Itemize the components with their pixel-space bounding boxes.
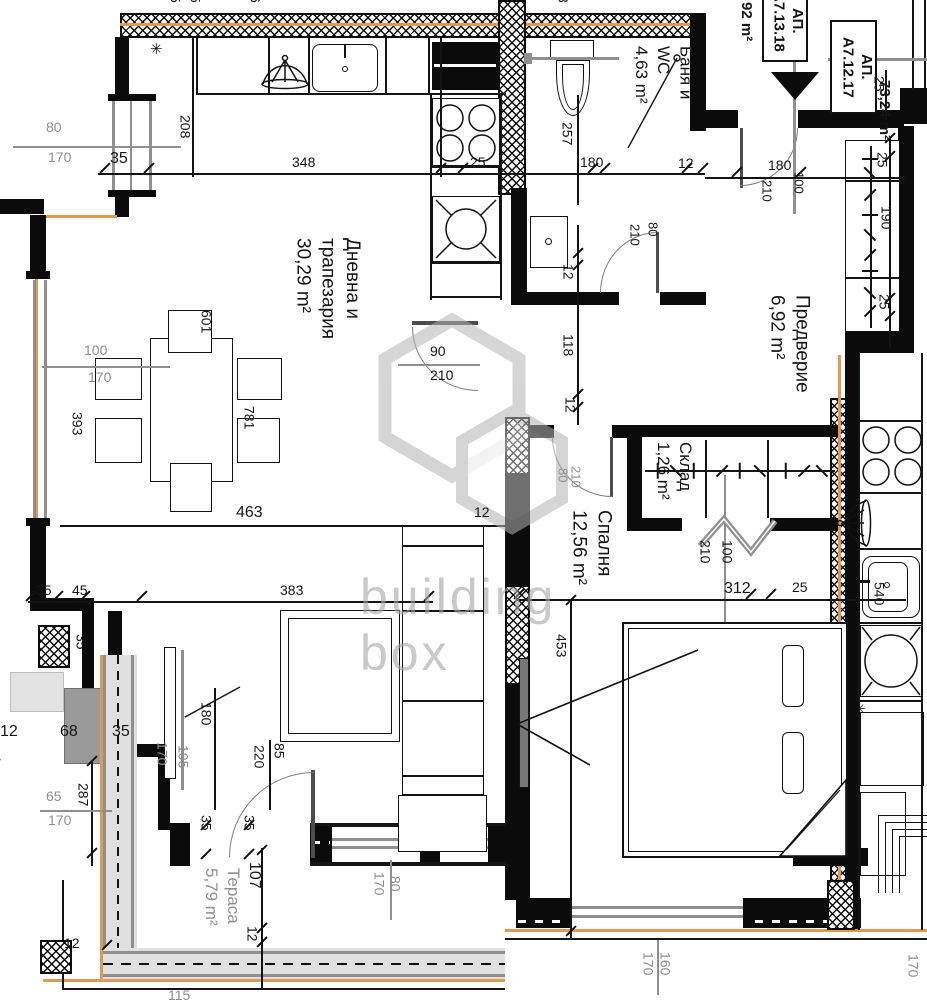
dim-label: 180 bbox=[768, 158, 791, 173]
counter-divider bbox=[308, 37, 310, 93]
dim-tick bbox=[136, 590, 147, 601]
apartment-label-current: АП. А7.12.17 bbox=[830, 20, 877, 114]
dim-label: 80 bbox=[46, 120, 62, 135]
dim-label: 170 bbox=[906, 954, 921, 977]
neighbor-divider bbox=[858, 420, 922, 422]
dim-label: 348 bbox=[292, 155, 315, 170]
wall-jamb bbox=[170, 823, 190, 866]
wardrobe-shelf bbox=[846, 277, 899, 279]
terrace-wall-line bbox=[310, 862, 505, 866]
dim-label: 287 bbox=[76, 783, 91, 806]
room-name: WC bbox=[652, 46, 674, 161]
cooktop bbox=[432, 98, 500, 166]
wall-storage-top bbox=[642, 425, 838, 437]
parapet-dash bbox=[103, 963, 505, 965]
room-name: Тераса bbox=[222, 868, 244, 953]
dim-label: 540 bbox=[872, 582, 887, 605]
dim-line bbox=[269, 740, 271, 810]
apartment-code: А7.12.17 bbox=[838, 22, 857, 112]
dim-label: 25 bbox=[875, 152, 890, 168]
dim-label: 160 bbox=[658, 952, 673, 975]
room-name: Предверие bbox=[789, 295, 814, 425]
dim-label: 45 bbox=[72, 583, 88, 598]
dim-label: 190 bbox=[879, 206, 894, 229]
dim-label: 210 bbox=[628, 224, 642, 246]
sofa-chaise bbox=[398, 795, 487, 852]
neighbor-cabinet bbox=[860, 792, 906, 876]
dim-label: 25 bbox=[872, 76, 887, 92]
dining-chair bbox=[170, 463, 212, 512]
washbasin-drain bbox=[545, 238, 552, 245]
dim-label: 453 bbox=[554, 634, 569, 657]
room-name: Хол с готварня bbox=[0, 690, 4, 840]
dining-table bbox=[150, 338, 233, 482]
cabinet-line bbox=[432, 296, 500, 298]
dim-label: 100 bbox=[720, 540, 735, 563]
dim-label: 12 bbox=[0, 724, 18, 741]
parapet-line bbox=[131, 655, 134, 980]
dim-label: 25 bbox=[877, 294, 892, 310]
hanger bbox=[862, 270, 878, 272]
asterisk-symbol: ✳ bbox=[150, 40, 163, 58]
kitchen-tall-unit-line bbox=[434, 64, 496, 67]
terrace-slide-track bbox=[181, 650, 184, 790]
dim-label: 210 bbox=[760, 180, 774, 202]
apartment-code: А7.13.18 bbox=[769, 0, 788, 60]
room-area: 12,56 m² bbox=[566, 510, 591, 605]
room-label-living: Дневна и трапезария 30,29 m² bbox=[290, 238, 364, 418]
dim-label: 208 bbox=[178, 115, 193, 138]
grab-bar bbox=[527, 57, 619, 60]
sofa-armrest bbox=[402, 775, 484, 777]
oven bbox=[432, 196, 500, 262]
counter-divider bbox=[385, 37, 387, 93]
dim-label: 220 bbox=[252, 745, 267, 768]
dim-label: 25 bbox=[792, 580, 808, 595]
dim-label-partial: 5 bbox=[168, 0, 183, 3]
parapet-line bbox=[103, 951, 505, 954]
wall-storage-bottom bbox=[627, 518, 682, 531]
room-label-hall: Предверие 6,92 m² bbox=[764, 295, 813, 425]
wall bbox=[115, 197, 129, 217]
window-jamb bbox=[743, 898, 753, 928]
hatch-column bbox=[827, 880, 855, 930]
room-area: 4,63 m² bbox=[630, 46, 652, 161]
neighbor-divider bbox=[858, 622, 922, 624]
boundary-line bbox=[505, 938, 927, 940]
dim-label-partial: 8 bbox=[556, 0, 571, 3]
dim-label: 393 bbox=[70, 412, 85, 435]
dim-label: 12 bbox=[561, 264, 576, 280]
dim-label: 35 bbox=[242, 815, 257, 831]
sofa-armrest bbox=[402, 545, 484, 547]
dim-label: 180 bbox=[580, 155, 603, 170]
shaft-hatched bbox=[498, 0, 526, 195]
dim-label: 65 bbox=[46, 789, 62, 804]
insulation-line-terrace-bottom bbox=[43, 979, 505, 982]
window-frame bbox=[33, 280, 36, 518]
apartment-label-neighbor: АП. А7.13.18 bbox=[762, 0, 808, 62]
counter-edge-vertical bbox=[500, 95, 502, 300]
window-leader bbox=[42, 366, 170, 368]
sink-faucet bbox=[344, 44, 346, 58]
dim-label: 25 bbox=[470, 155, 486, 170]
wall-neighbor-left bbox=[0, 199, 44, 214]
wall-bedroom-top bbox=[528, 425, 554, 438]
sofa-cushion-line bbox=[402, 700, 484, 702]
wall-storage-bottom bbox=[770, 518, 838, 531]
wall-step bbox=[30, 598, 94, 611]
neighbor-washer bbox=[860, 625, 922, 697]
parapet-dash bbox=[117, 655, 119, 980]
wardrobe-shelf bbox=[846, 180, 899, 182]
window-opening bbox=[572, 898, 743, 928]
wall bbox=[511, 292, 619, 305]
dim-label: 210 bbox=[569, 466, 583, 488]
dim-label: 781 bbox=[242, 406, 257, 429]
window-cap bbox=[108, 190, 156, 197]
dim-label: 35 bbox=[110, 151, 128, 168]
dim-label: 107 bbox=[245, 862, 262, 889]
window-leader bbox=[13, 146, 181, 148]
neighbor-divider bbox=[858, 492, 922, 494]
neighbor-divider bbox=[858, 700, 922, 702]
dim-label: 105 bbox=[176, 745, 191, 768]
dim-label: 210 bbox=[698, 540, 713, 563]
room-name: Дневна и bbox=[339, 238, 364, 418]
apartment-area-neighbor: 92 m² bbox=[738, 2, 755, 41]
hanger bbox=[739, 463, 741, 479]
floor-plan: building box Дневна и трапезария 30,29 m… bbox=[0, 0, 927, 1000]
dining-chair bbox=[237, 358, 282, 400]
window-glazing bbox=[572, 915, 743, 918]
dim-label: 12 bbox=[563, 397, 578, 413]
dim-label: 170 bbox=[48, 813, 71, 828]
cabinet-line bbox=[432, 262, 500, 264]
hanger bbox=[785, 463, 787, 479]
wall bbox=[511, 188, 527, 300]
dim-label: 80 bbox=[646, 222, 660, 236]
grab-bar-knob bbox=[524, 53, 532, 64]
dim-tick bbox=[697, 162, 708, 173]
hatch-block bbox=[38, 625, 70, 668]
wall bbox=[660, 292, 706, 305]
dim-line bbox=[98, 173, 705, 175]
dim-label: 90 bbox=[430, 344, 446, 359]
dim-label: 210 bbox=[430, 368, 453, 383]
dim-label-partial: 5 bbox=[188, 0, 203, 3]
ext-line bbox=[577, 95, 579, 205]
dim-label: 170 bbox=[641, 952, 656, 975]
wall-dashes bbox=[518, 920, 564, 923]
boundary-line bbox=[62, 988, 505, 990]
wall-corridor bbox=[692, 110, 738, 128]
room-name: Спалня bbox=[591, 510, 616, 605]
parapet-line bbox=[103, 974, 505, 977]
counter-edge bbox=[196, 93, 506, 95]
dim-label: 100 bbox=[792, 172, 806, 194]
door-leader bbox=[398, 364, 480, 366]
wall-left-top bbox=[115, 37, 129, 99]
dim-label: 170 bbox=[155, 742, 170, 765]
hatch-wall bbox=[505, 417, 530, 475]
watermark-text-line1: building bbox=[360, 568, 556, 626]
dim-label: 170 bbox=[372, 872, 387, 895]
room-name: Склад bbox=[674, 442, 696, 512]
asterisk-symbol: ✳ bbox=[853, 700, 866, 718]
neighbor-faucet bbox=[856, 580, 870, 583]
dim-label: 100 bbox=[84, 343, 107, 358]
window-jamb bbox=[488, 826, 505, 862]
room-area: 30,29 m² bbox=[290, 238, 315, 418]
dim-tick bbox=[765, 588, 776, 599]
room-name: Баня и bbox=[674, 46, 696, 161]
edge-line bbox=[912, 0, 914, 90]
sink-drain bbox=[342, 66, 348, 72]
dim-label: 80 bbox=[556, 468, 570, 482]
window-frame bbox=[44, 280, 47, 518]
dim-line bbox=[570, 600, 572, 938]
pillow bbox=[782, 645, 804, 707]
room-name: трапезария bbox=[315, 238, 340, 418]
room-label-terrace: Тераса 5,79 m² bbox=[200, 868, 244, 953]
parapet-line bbox=[103, 655, 106, 980]
toilet-cistern bbox=[550, 40, 594, 58]
dim-label: 68 bbox=[60, 724, 78, 741]
dim-label: 35 bbox=[112, 724, 130, 741]
living-door-leaf bbox=[412, 321, 478, 325]
dim-tick bbox=[99, 162, 110, 173]
dim-label: 12 bbox=[474, 505, 490, 520]
insulation-line-terrace-left bbox=[100, 655, 103, 982]
dim-label: 85 bbox=[272, 743, 287, 759]
dim-label: 12 bbox=[678, 156, 694, 171]
dim-label: 12 bbox=[64, 936, 80, 951]
dim-label: 35 bbox=[199, 815, 214, 831]
room-area: 1,26 m² bbox=[652, 442, 674, 512]
column-gray bbox=[10, 672, 64, 712]
room-area: 5,79 m² bbox=[200, 868, 222, 953]
counter-edge bbox=[196, 37, 198, 93]
dim-line bbox=[60, 525, 505, 527]
wall-right bbox=[898, 126, 914, 348]
dim-label: 383 bbox=[280, 583, 303, 598]
dim-label: 80 bbox=[388, 876, 403, 892]
room-label-neighbor-partial: Хол с готварня bbox=[0, 690, 4, 840]
dim-label: 463 bbox=[236, 505, 263, 522]
dim-label: 118 bbox=[561, 334, 576, 356]
dining-chair bbox=[95, 418, 142, 463]
neighbor-divider bbox=[858, 548, 922, 550]
closet-divider bbox=[705, 440, 707, 518]
edge-line bbox=[924, 0, 926, 88]
apartment-prefix: АП. bbox=[856, 22, 875, 112]
counter-divider bbox=[428, 37, 430, 93]
window-cap bbox=[26, 271, 50, 279]
exterior-wall-top-hatched bbox=[120, 13, 692, 38]
dim-label: 601 bbox=[199, 310, 214, 333]
neighbor-cooktop-burners bbox=[863, 427, 921, 485]
insulation-line-top bbox=[120, 23, 692, 26]
dim-label-partial: 6 bbox=[248, 0, 263, 3]
dim-label: 35 bbox=[74, 634, 89, 650]
wall-corner bbox=[900, 88, 927, 124]
dim-label: 180 bbox=[199, 702, 214, 725]
ext-line bbox=[192, 37, 194, 177]
room-label-storage: Склад 1,26 m² bbox=[652, 442, 696, 512]
room-label-bath: Баня и WC 4,63 m² bbox=[630, 46, 696, 161]
window-cap bbox=[108, 94, 156, 101]
dim-label: 35 bbox=[36, 583, 52, 598]
wall-right-band bbox=[845, 330, 914, 353]
bed-inner bbox=[628, 628, 842, 852]
room-label-bedroom: Спалня 12,56 m² bbox=[566, 510, 615, 605]
wall-storage-left bbox=[627, 425, 642, 530]
dim-label: 170 bbox=[48, 150, 71, 165]
window-glazing bbox=[572, 906, 743, 909]
dim-label: 312 bbox=[724, 581, 751, 598]
entrance-arrow bbox=[771, 72, 819, 100]
wall-left bbox=[30, 215, 46, 278]
ext-line bbox=[440, 37, 442, 177]
room-area: 6,92 m² bbox=[764, 295, 789, 425]
closet-divider bbox=[767, 440, 769, 518]
wall-step bbox=[82, 611, 94, 693]
neighbor-cabinet bbox=[860, 712, 924, 786]
pillow bbox=[782, 732, 804, 794]
hanger bbox=[862, 214, 878, 216]
dim-label: 170 bbox=[88, 370, 111, 385]
dim-label: 12 bbox=[245, 926, 260, 942]
dim-label-partial: 115 bbox=[168, 988, 190, 1000]
tv-panel bbox=[519, 658, 529, 788]
dim-tick bbox=[200, 848, 211, 859]
counter-divider bbox=[268, 37, 270, 93]
apartment-prefix: АП. bbox=[787, 0, 806, 60]
watermark-text-line2: box bbox=[360, 624, 450, 682]
dim-label: 257 bbox=[560, 122, 575, 145]
